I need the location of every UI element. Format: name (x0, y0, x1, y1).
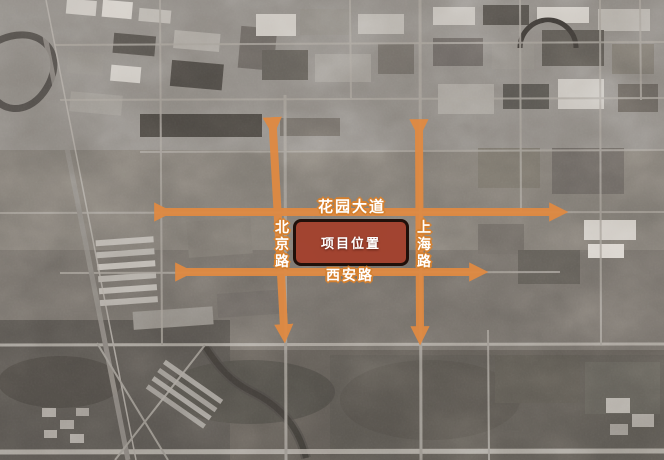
project-location-label: 项目位置 (321, 233, 381, 252)
satellite-location-map: 项目位置 花园大道 北京路 上海路 西安路 (0, 0, 664, 460)
road-label-xian-road: 西安路 (326, 269, 374, 283)
road-label-beijing-road: 北京路 (274, 220, 288, 271)
road-label-huayuan-avenue: 花园大道 (318, 200, 386, 215)
road-label-shanghai-road: 上海路 (416, 220, 430, 271)
project-location-box: 项目位置 (293, 219, 409, 266)
